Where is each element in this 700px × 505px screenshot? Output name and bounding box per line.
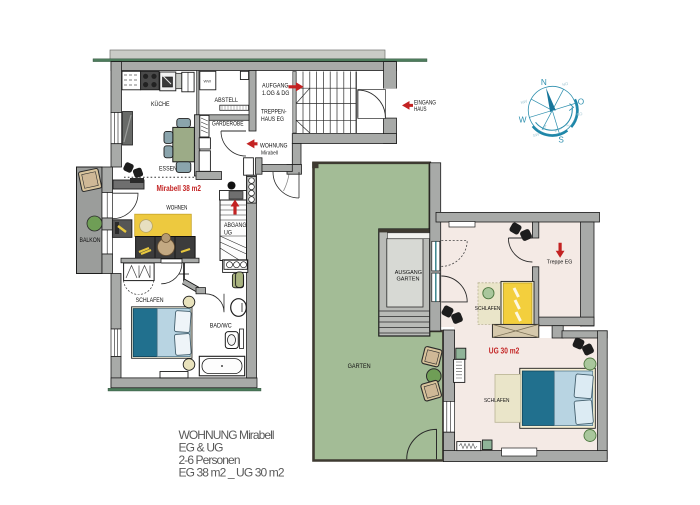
- svg-text:BAD/WC: BAD/WC: [210, 324, 233, 330]
- svg-text:O: O: [578, 98, 584, 107]
- svg-text:WW: WW: [204, 79, 212, 84]
- svg-text:WOHNUNG: WOHNUNG: [260, 144, 288, 150]
- svg-text:ESSEN: ESSEN: [159, 167, 177, 173]
- svg-text:EG 38 m2 _ UG 30 m2: EG 38 m2 _ UG 30 m2: [179, 465, 285, 479]
- svg-text:EINGANG: EINGANG: [414, 101, 436, 107]
- svg-text:W: W: [519, 115, 527, 124]
- svg-text:1.OG & DG: 1.OG & DG: [262, 91, 290, 97]
- svg-text:UG 30 m2: UG 30 m2: [489, 346, 520, 355]
- svg-text:GARTEN: GARTEN: [397, 277, 420, 283]
- svg-text:SCHLAFEN: SCHLAFEN: [136, 298, 164, 304]
- svg-text:Mirabell: Mirabell: [261, 150, 278, 156]
- svg-text:UG: UG: [224, 230, 232, 236]
- svg-text:Mirabell 38 m2: Mirabell 38 m2: [157, 184, 202, 193]
- svg-text:WOHNEN: WOHNEN: [166, 206, 187, 212]
- svg-text:SCHLAFEN: SCHLAFEN: [475, 306, 501, 312]
- svg-text:HAUS EG: HAUS EG: [261, 117, 284, 123]
- svg-text:ABGANG: ABGANG: [224, 223, 247, 229]
- svg-text:GARTEN: GARTEN: [348, 364, 371, 370]
- svg-text:TREPPEN-: TREPPEN-: [261, 110, 287, 116]
- svg-text:Treppe EG: Treppe EG: [547, 260, 573, 266]
- svg-text:AUFGANG: AUFGANG: [262, 84, 289, 90]
- svg-text:HAUS: HAUS: [414, 107, 427, 113]
- svg-text:ABSTELL: ABSTELL: [215, 98, 239, 104]
- svg-text:KÜCHE: KÜCHE: [151, 101, 170, 108]
- svg-text:xxxx: xxxx: [565, 123, 572, 128]
- svg-text:S: S: [558, 136, 564, 145]
- svg-text:AUSGANG: AUSGANG: [395, 270, 423, 276]
- svg-text:GARDEROBE: GARDEROBE: [212, 122, 244, 128]
- svg-text:N: N: [541, 78, 547, 87]
- svg-text:SCHLAFEN: SCHLAFEN: [484, 398, 510, 404]
- svg-text:BALKON: BALKON: [80, 238, 101, 244]
